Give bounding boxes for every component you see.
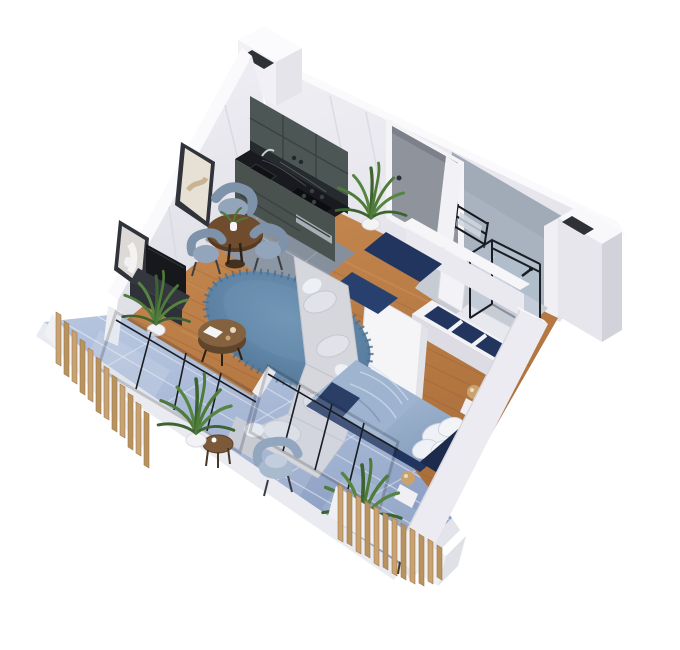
cup bbox=[230, 327, 236, 333]
decor-vase bbox=[124, 257, 132, 267]
cup bbox=[212, 438, 217, 443]
door-handle bbox=[397, 176, 402, 181]
apartment-3d-render bbox=[0, 0, 680, 650]
floorplan-render bbox=[0, 0, 680, 650]
cup-small bbox=[226, 336, 231, 341]
